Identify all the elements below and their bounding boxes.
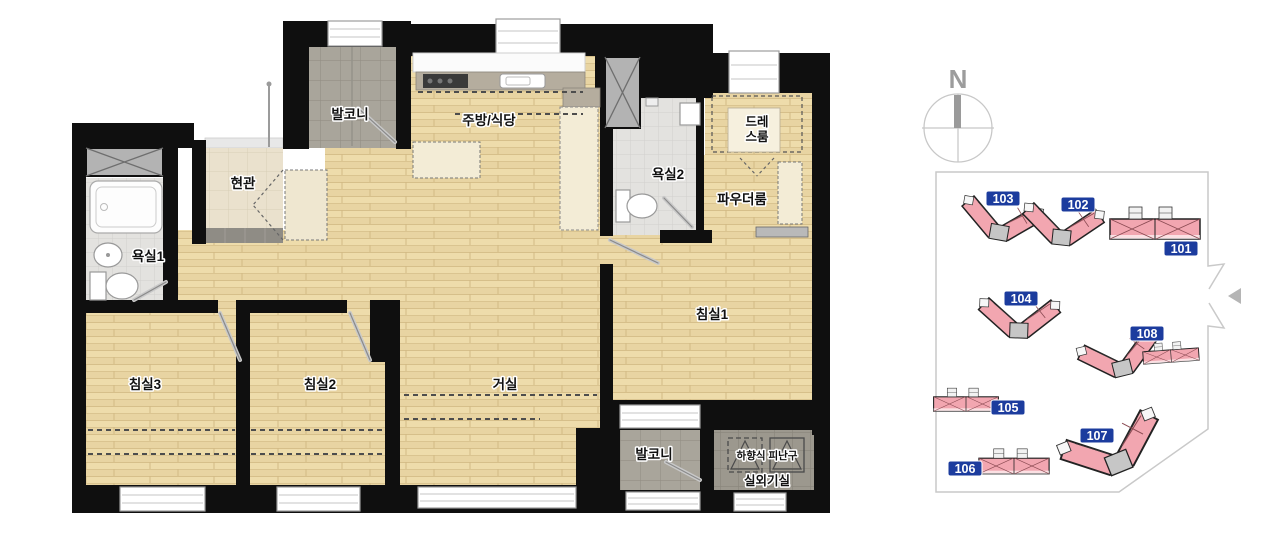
svg-text:108: 108	[1137, 327, 1158, 341]
floorplan-page: 발코니 주방/식당 현관 욕실1 욕실2 드레 스룸 파우더룸 침실1 침실3 …	[0, 0, 1280, 545]
svg-text:107: 107	[1087, 429, 1108, 443]
label-powder: 파우더룸	[717, 192, 767, 207]
label-bedroom3: 침실3	[129, 377, 162, 392]
pantry-closet	[413, 142, 480, 178]
building-106[interactable]	[979, 449, 1049, 474]
entry-porch-step	[205, 138, 283, 148]
shower-head	[646, 98, 658, 106]
compass-north-needle	[954, 95, 961, 128]
label-bath2: 욕실2	[652, 167, 684, 182]
building-badge-101[interactable]: 101	[1164, 241, 1198, 256]
svg-text:102: 102	[1068, 198, 1089, 212]
svg-text:105: 105	[998, 401, 1019, 415]
site-plan: 101 102 103 104 105 106 107 108	[934, 172, 1241, 492]
shaft-box-left	[86, 148, 163, 176]
svg-text:101: 101	[1171, 242, 1192, 256]
building-badge-106[interactable]: 106	[948, 461, 982, 476]
shoe-closet	[285, 170, 327, 240]
label-dress-line2: 스룸	[745, 129, 769, 144]
label-dress-line1: 드레	[745, 114, 768, 129]
building-badge-102[interactable]: 102	[1061, 197, 1095, 212]
unit-floorplan: 발코니 주방/식당 현관 욕실1 욕실2 드레 스룸 파우더룸 침실1 침실3 …	[72, 19, 830, 513]
building-101[interactable]	[1110, 207, 1200, 239]
building-badge-105[interactable]: 105	[991, 400, 1025, 415]
bath1-toilet	[106, 273, 138, 299]
building-badge-108[interactable]: 108	[1130, 326, 1164, 341]
building-badge-103[interactable]: 103	[986, 191, 1020, 206]
label-bath1: 욕실1	[132, 249, 165, 264]
window-balcony-bottom	[626, 492, 700, 510]
window-bedroom2	[277, 487, 360, 511]
building-badge-104[interactable]: 104	[1004, 291, 1038, 306]
label-balcony-top: 발코니	[331, 106, 368, 122]
label-bedroom1: 침실1	[696, 307, 729, 322]
window-outdoor-unit	[734, 493, 786, 511]
label-entry: 현관	[231, 175, 256, 191]
window-living	[418, 487, 576, 508]
window-dressroom	[729, 51, 779, 93]
sink	[500, 74, 545, 88]
entry-threshold	[205, 228, 283, 243]
label-outdoor-unit: 실외기실	[744, 473, 790, 488]
label-living: 거실	[493, 377, 518, 392]
wardrobe-strip	[756, 227, 808, 237]
site-entrance-arrow-icon	[1228, 288, 1241, 304]
svg-text:106: 106	[955, 462, 976, 476]
shaft-box-top-right	[605, 57, 640, 128]
room-bedroom2-floor	[248, 313, 388, 487]
kitchen-cabinet	[560, 107, 598, 230]
bath2-toilet	[627, 194, 657, 218]
compass-north-label: N	[949, 64, 968, 94]
powder-closet	[778, 162, 802, 224]
bath2-sink	[680, 103, 700, 125]
label-balcony-bottom: 발코니	[635, 446, 672, 462]
building-107[interactable]	[1055, 405, 1171, 491]
room-kitchen-side-floor	[325, 140, 410, 235]
svg-text:104: 104	[1011, 292, 1032, 306]
building-badge-107[interactable]: 107	[1080, 428, 1114, 443]
compass: N	[922, 64, 994, 162]
svg-text:103: 103	[993, 192, 1014, 206]
window-bedroom1	[620, 405, 700, 428]
window-bedroom3	[120, 487, 205, 511]
room-living-floor	[398, 230, 600, 490]
label-kitchen: 주방/식당	[462, 112, 516, 128]
bath1-toilet-tank	[90, 272, 106, 300]
room-bedroom3-floor	[85, 313, 238, 487]
label-evac-hatch: 하향식 피난구	[737, 449, 798, 462]
label-bedroom2: 침실2	[304, 377, 336, 392]
window-kitchen	[496, 19, 560, 55]
building-105[interactable]	[934, 388, 999, 411]
window-balcony-top	[328, 21, 382, 46]
